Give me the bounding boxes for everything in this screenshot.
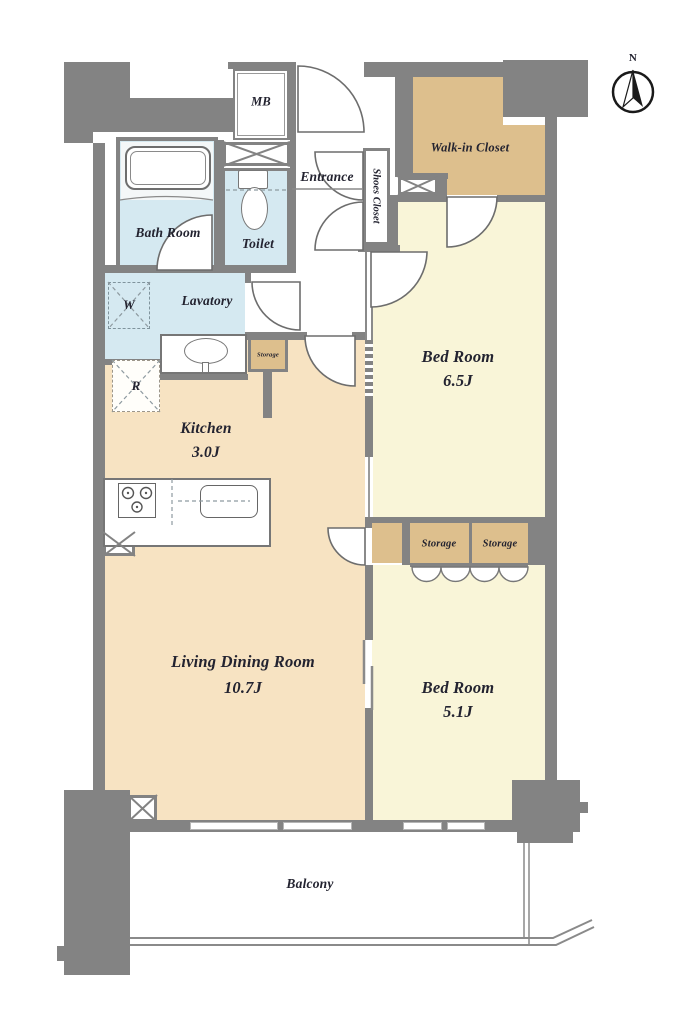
thin-partition	[365, 252, 373, 340]
pipe-shaft-icon	[398, 177, 438, 195]
wall	[64, 132, 93, 143]
window	[403, 822, 442, 830]
washbasin-icon	[184, 338, 228, 364]
north-label: N	[629, 52, 637, 64]
sliding-door-icon	[364, 640, 372, 710]
walk-in-closet-floor	[503, 125, 545, 195]
wall	[289, 69, 296, 140]
wall	[352, 332, 365, 340]
storage-box	[372, 523, 402, 563]
lavatory-floor	[105, 334, 160, 361]
shaft-wall-hatched	[365, 340, 373, 397]
refrigerator-label: R	[132, 378, 141, 394]
wall	[410, 563, 528, 567]
room-label-bedroom1: Bed Room	[422, 347, 495, 367]
walk-in-closet-floor	[447, 173, 503, 195]
wall	[263, 372, 272, 418]
room-label-living-dining: Living Dining Room	[171, 652, 315, 672]
window	[447, 822, 485, 830]
room-label-shoes-closet: Shoes Closet	[371, 168, 382, 223]
room-label-entrance: Entrance	[300, 169, 353, 185]
wall	[245, 273, 251, 283]
washer-label: W	[123, 297, 135, 313]
wall	[290, 140, 296, 273]
wall-opening-line	[368, 457, 370, 517]
wall	[64, 98, 233, 132]
bathtub-icon	[125, 146, 211, 190]
wall	[580, 802, 588, 813]
hallway-floor	[245, 273, 296, 332]
wall	[395, 70, 413, 177]
room-area-living-dining: 10.7J	[224, 678, 262, 698]
toilet-icon	[241, 187, 268, 230]
room-label-balcony: Balcony	[286, 876, 333, 892]
wall	[64, 790, 130, 975]
north-arrow-icon	[613, 70, 653, 112]
room-label-bedroom2: Bed Room	[422, 678, 495, 698]
wall	[365, 397, 373, 457]
wall	[364, 62, 505, 77]
room-area-kitchen: 3.0J	[192, 444, 220, 462]
room-label-mb: MB	[251, 95, 271, 110]
window	[283, 822, 352, 830]
wall	[503, 60, 588, 117]
room-label-toilet: Toilet	[242, 236, 274, 252]
room-label-storage1: Storage	[422, 539, 457, 550]
room-area-bedroom1: 6.5J	[443, 371, 473, 391]
wall	[390, 195, 398, 252]
wall	[398, 195, 447, 202]
room-label-storage2: Storage	[483, 539, 518, 550]
wall	[517, 832, 573, 843]
wall	[545, 117, 557, 785]
wall	[93, 265, 296, 273]
wall	[497, 195, 545, 202]
room-label-lavatory: Lavatory	[181, 293, 232, 309]
wall	[365, 708, 373, 820]
wall	[160, 374, 248, 380]
wall	[93, 143, 105, 793]
room-label-storage-small: Storage	[257, 352, 279, 359]
pillar-icon	[128, 795, 157, 822]
floor-plan: MB Entrance Shoes Closet Walk-in Closet …	[0, 0, 691, 1024]
wall	[228, 62, 296, 69]
wall	[57, 946, 65, 961]
room-label-walk-in-closet: Walk-in Closet	[431, 141, 510, 156]
room-label-bath: Bath Room	[135, 225, 200, 241]
pipe-shaft-icon	[223, 142, 290, 166]
room-label-kitchen: Kitchen	[180, 420, 231, 438]
room-area-bedroom2: 5.1J	[443, 702, 473, 722]
stove-icon	[118, 483, 156, 518]
wall	[402, 523, 410, 565]
window	[190, 822, 278, 830]
kitchen-sink-icon	[200, 485, 258, 518]
washbasin-icon	[202, 362, 209, 373]
wall	[528, 523, 545, 565]
entrance-door-arc	[298, 66, 364, 132]
wall	[365, 565, 373, 640]
walk-in-closet-floor	[408, 77, 503, 173]
